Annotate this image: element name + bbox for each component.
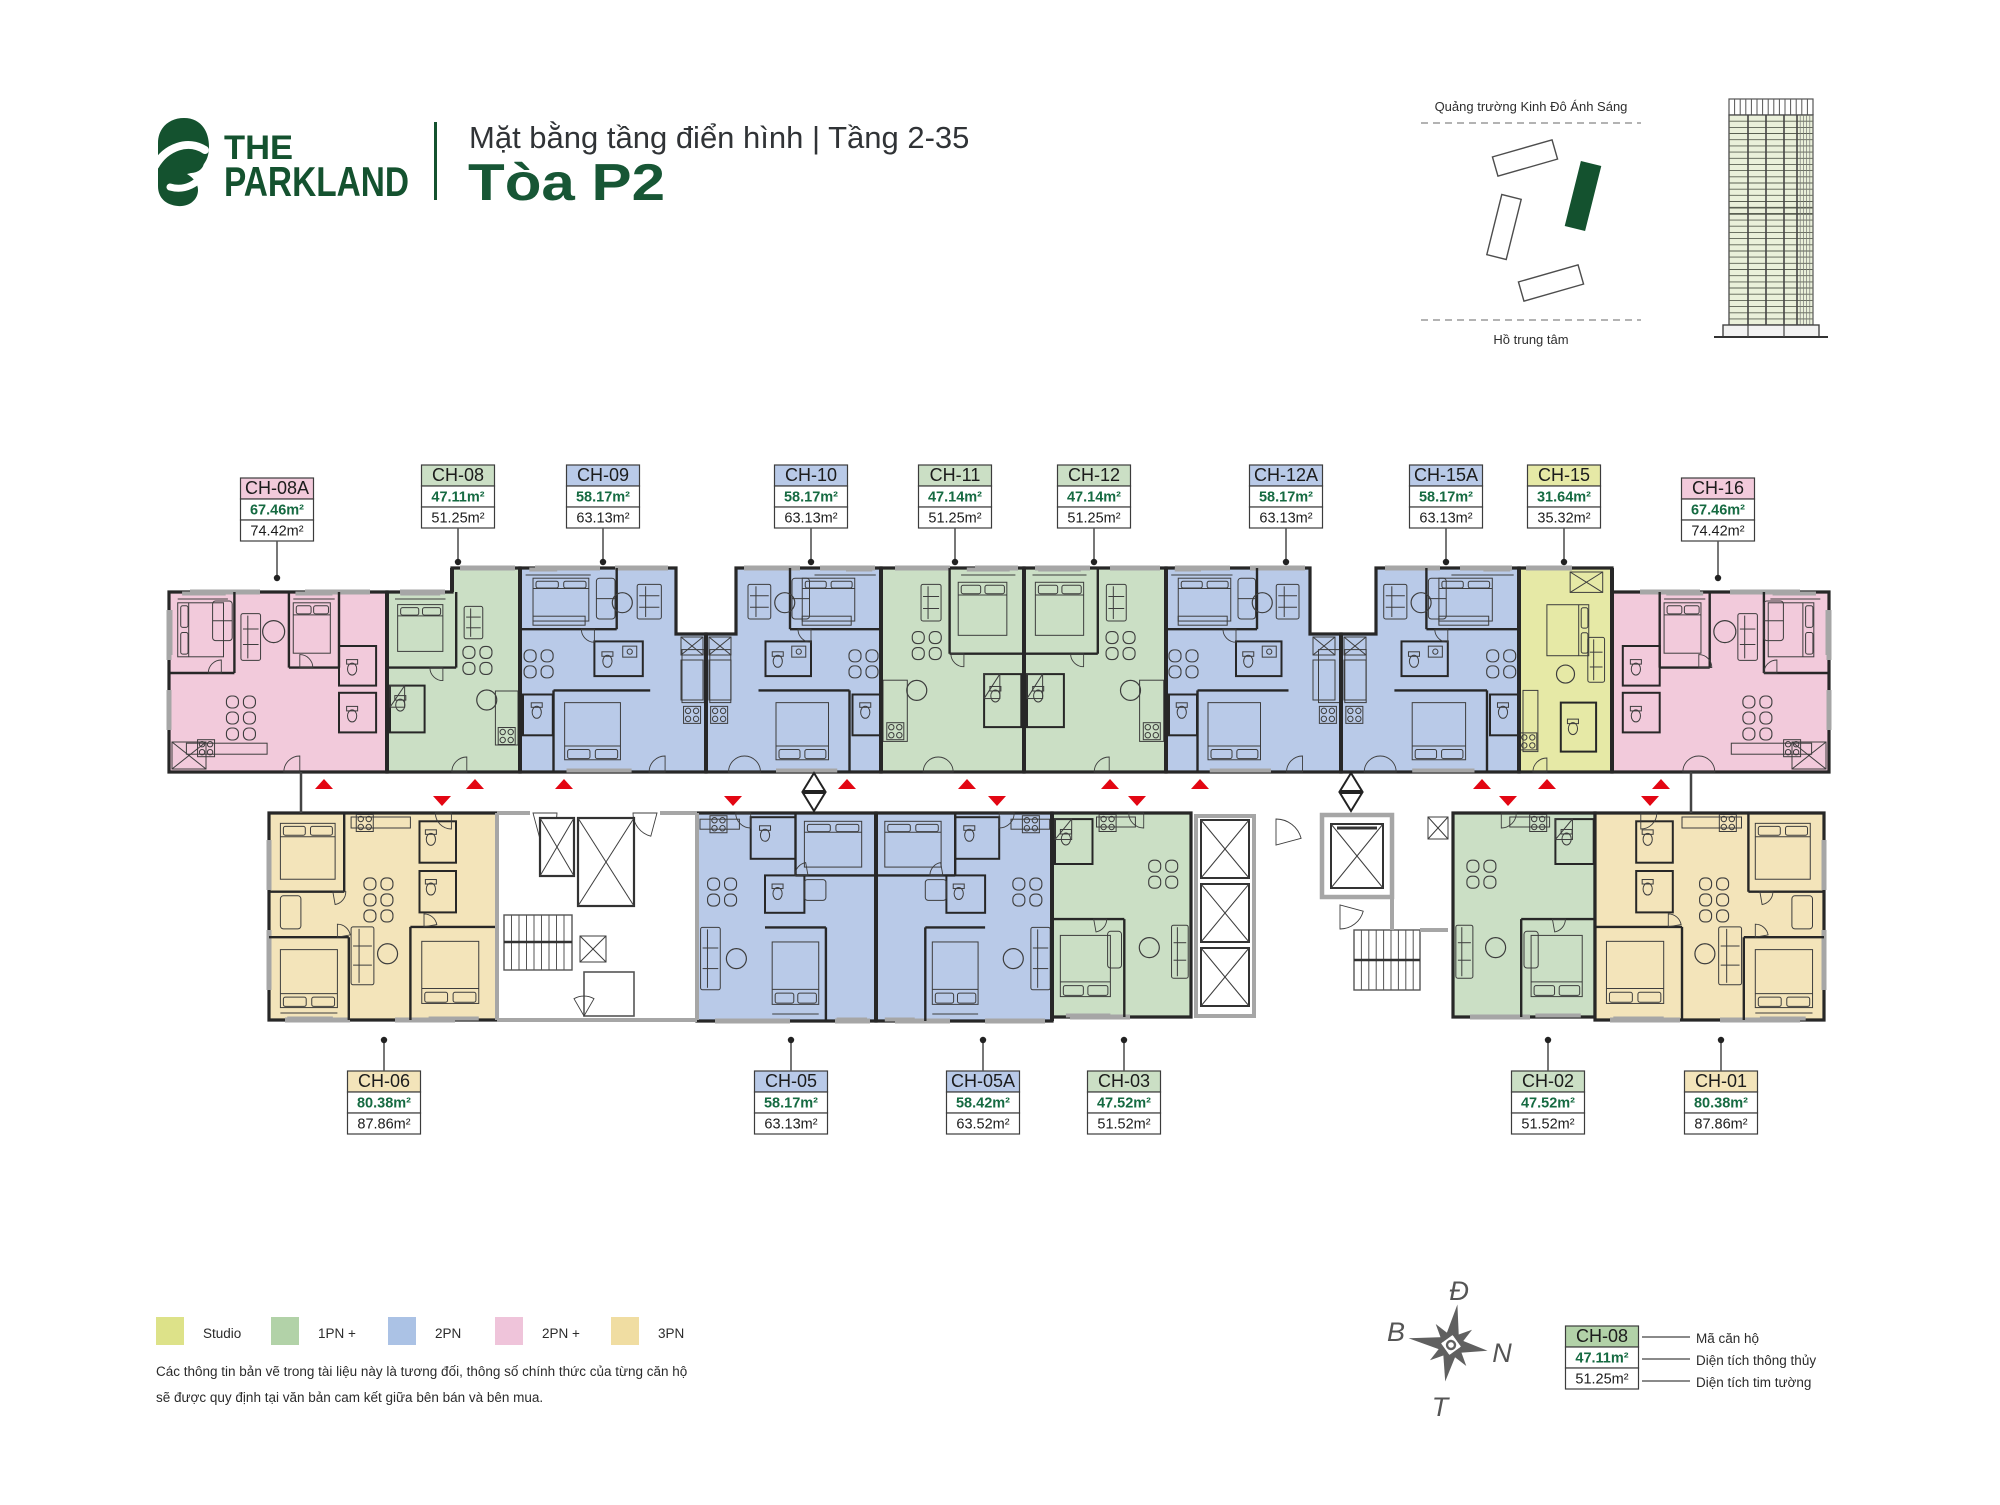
svg-text:Tòa P2: Tòa P2 bbox=[468, 154, 665, 212]
svg-text:Hồ trung tâm: Hồ trung tâm bbox=[1493, 332, 1568, 347]
svg-text:63.13m²: 63.13m² bbox=[1259, 511, 1312, 527]
svg-text:CH-11: CH-11 bbox=[930, 465, 981, 485]
svg-text:58.17m²: 58.17m² bbox=[764, 1096, 818, 1112]
svg-text:Mặt bằng tầng điển hình | Tầ: Mặt bằng tầng điển hình | Tầng 2-35 bbox=[469, 120, 969, 155]
svg-text:63.13m²: 63.13m² bbox=[764, 1117, 817, 1133]
svg-text:Các thông tin bản vẽ trong tài: Các thông tin bản vẽ trong tài liệu này … bbox=[156, 1364, 687, 1379]
svg-text:CH-10: CH-10 bbox=[785, 465, 837, 485]
svg-text:sẽ được quy định tại văn bản c: sẽ được quy định tại văn bản cam kết giữ… bbox=[156, 1390, 543, 1405]
svg-text:CH-12: CH-12 bbox=[1068, 465, 1120, 485]
svg-text:CH-02: CH-02 bbox=[1522, 1071, 1574, 1091]
svg-text:CH-15: CH-15 bbox=[1538, 465, 1590, 485]
svg-text:2PN: 2PN bbox=[435, 1326, 461, 1341]
svg-text:87.86m²: 87.86m² bbox=[1694, 1117, 1747, 1133]
svg-text:CH-15A: CH-15A bbox=[1414, 465, 1478, 485]
svg-text:47.52m²: 47.52m² bbox=[1521, 1096, 1575, 1112]
svg-text:CH-05A: CH-05A bbox=[951, 1071, 1015, 1091]
svg-text:87.86m²: 87.86m² bbox=[357, 1117, 410, 1133]
svg-text:51.25m²: 51.25m² bbox=[431, 511, 484, 527]
svg-text:63.52m²: 63.52m² bbox=[956, 1117, 1009, 1133]
svg-text:CH-05: CH-05 bbox=[765, 1071, 817, 1091]
svg-text:58.17m²: 58.17m² bbox=[1259, 490, 1313, 506]
svg-text:Mã căn hộ: Mã căn hộ bbox=[1696, 1331, 1759, 1346]
svg-text:Đ: Đ bbox=[1449, 1276, 1469, 1306]
svg-text:CH-06: CH-06 bbox=[358, 1071, 410, 1091]
svg-text:58.17m²: 58.17m² bbox=[784, 490, 838, 506]
svg-text:67.46m²: 67.46m² bbox=[1691, 503, 1745, 519]
svg-text:51.52m²: 51.52m² bbox=[1097, 1117, 1150, 1133]
svg-text:N: N bbox=[1492, 1338, 1512, 1368]
svg-text:47.11m²: 47.11m² bbox=[1575, 1351, 1628, 1367]
svg-text:51.25m²: 51.25m² bbox=[928, 511, 981, 527]
svg-text:63.13m²: 63.13m² bbox=[576, 511, 629, 527]
svg-text:47.14m²: 47.14m² bbox=[928, 490, 982, 506]
svg-text:74.42m²: 74.42m² bbox=[250, 524, 303, 540]
svg-text:CH-16: CH-16 bbox=[1692, 478, 1744, 498]
svg-text:31.64m²: 31.64m² bbox=[1537, 490, 1591, 506]
svg-text:CH-08A: CH-08A bbox=[245, 478, 309, 498]
svg-text:1PN +: 1PN + bbox=[318, 1326, 356, 1341]
svg-text:47.52m²: 47.52m² bbox=[1097, 1096, 1151, 1112]
svg-text:3PN: 3PN bbox=[658, 1326, 684, 1341]
svg-text:47.14m²: 47.14m² bbox=[1067, 490, 1121, 506]
svg-text:63.13m²: 63.13m² bbox=[1419, 511, 1472, 527]
svg-text:58.42m²: 58.42m² bbox=[956, 1096, 1010, 1112]
svg-text:51.52m²: 51.52m² bbox=[1521, 1117, 1574, 1133]
svg-text:CH-12A: CH-12A bbox=[1254, 465, 1318, 485]
svg-text:35.32m²: 35.32m² bbox=[1537, 511, 1590, 527]
svg-text:Diện tích thông thủy: Diện tích thông thủy bbox=[1696, 1353, 1816, 1368]
svg-text:CH-09: CH-09 bbox=[577, 465, 629, 485]
svg-text:CH-01: CH-01 bbox=[1695, 1071, 1747, 1091]
svg-text:58.17m²: 58.17m² bbox=[576, 490, 630, 506]
svg-text:PARKLAND: PARKLAND bbox=[224, 158, 409, 205]
svg-text:2PN +: 2PN + bbox=[542, 1326, 580, 1341]
svg-text:CH-08: CH-08 bbox=[432, 465, 484, 485]
svg-text:51.25m²: 51.25m² bbox=[1575, 1372, 1628, 1388]
svg-text:67.46m²: 67.46m² bbox=[250, 503, 304, 519]
svg-text:CH-08: CH-08 bbox=[1576, 1326, 1628, 1346]
svg-text:80.38m²: 80.38m² bbox=[1694, 1096, 1748, 1112]
svg-text:58.17m²: 58.17m² bbox=[1419, 490, 1473, 506]
svg-text:63.13m²: 63.13m² bbox=[784, 511, 837, 527]
svg-text:T: T bbox=[1432, 1392, 1451, 1422]
svg-text:80.38m²: 80.38m² bbox=[357, 1096, 411, 1112]
svg-text:51.25m²: 51.25m² bbox=[1067, 511, 1120, 527]
svg-text:CH-03: CH-03 bbox=[1098, 1071, 1150, 1091]
svg-text:Diện tích tim tường: Diện tích tim tường bbox=[1696, 1375, 1811, 1390]
svg-text:74.42m²: 74.42m² bbox=[1691, 524, 1744, 540]
svg-text:47.11m²: 47.11m² bbox=[431, 490, 484, 506]
svg-text:Quảng trường Kinh Đô Ánh Sáng: Quảng trường Kinh Đô Ánh Sáng bbox=[1435, 99, 1628, 114]
svg-text:Studio: Studio bbox=[203, 1326, 241, 1341]
svg-text:B: B bbox=[1387, 1317, 1405, 1347]
